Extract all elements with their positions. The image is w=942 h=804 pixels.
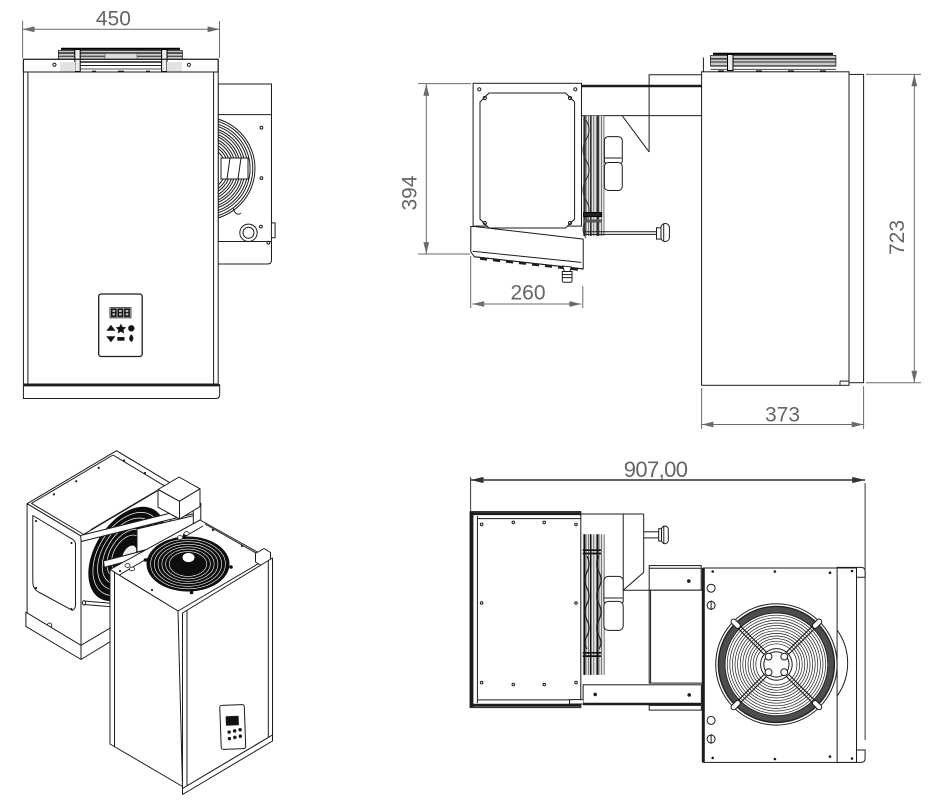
svg-text:450: 450 [96, 7, 131, 30]
svg-text:373: 373 [765, 404, 800, 427]
svg-text:723: 723 [886, 220, 909, 255]
svg-text:394: 394 [399, 175, 422, 210]
svg-text:907,00: 907,00 [624, 457, 688, 482]
svg-text:260: 260 [510, 281, 545, 304]
